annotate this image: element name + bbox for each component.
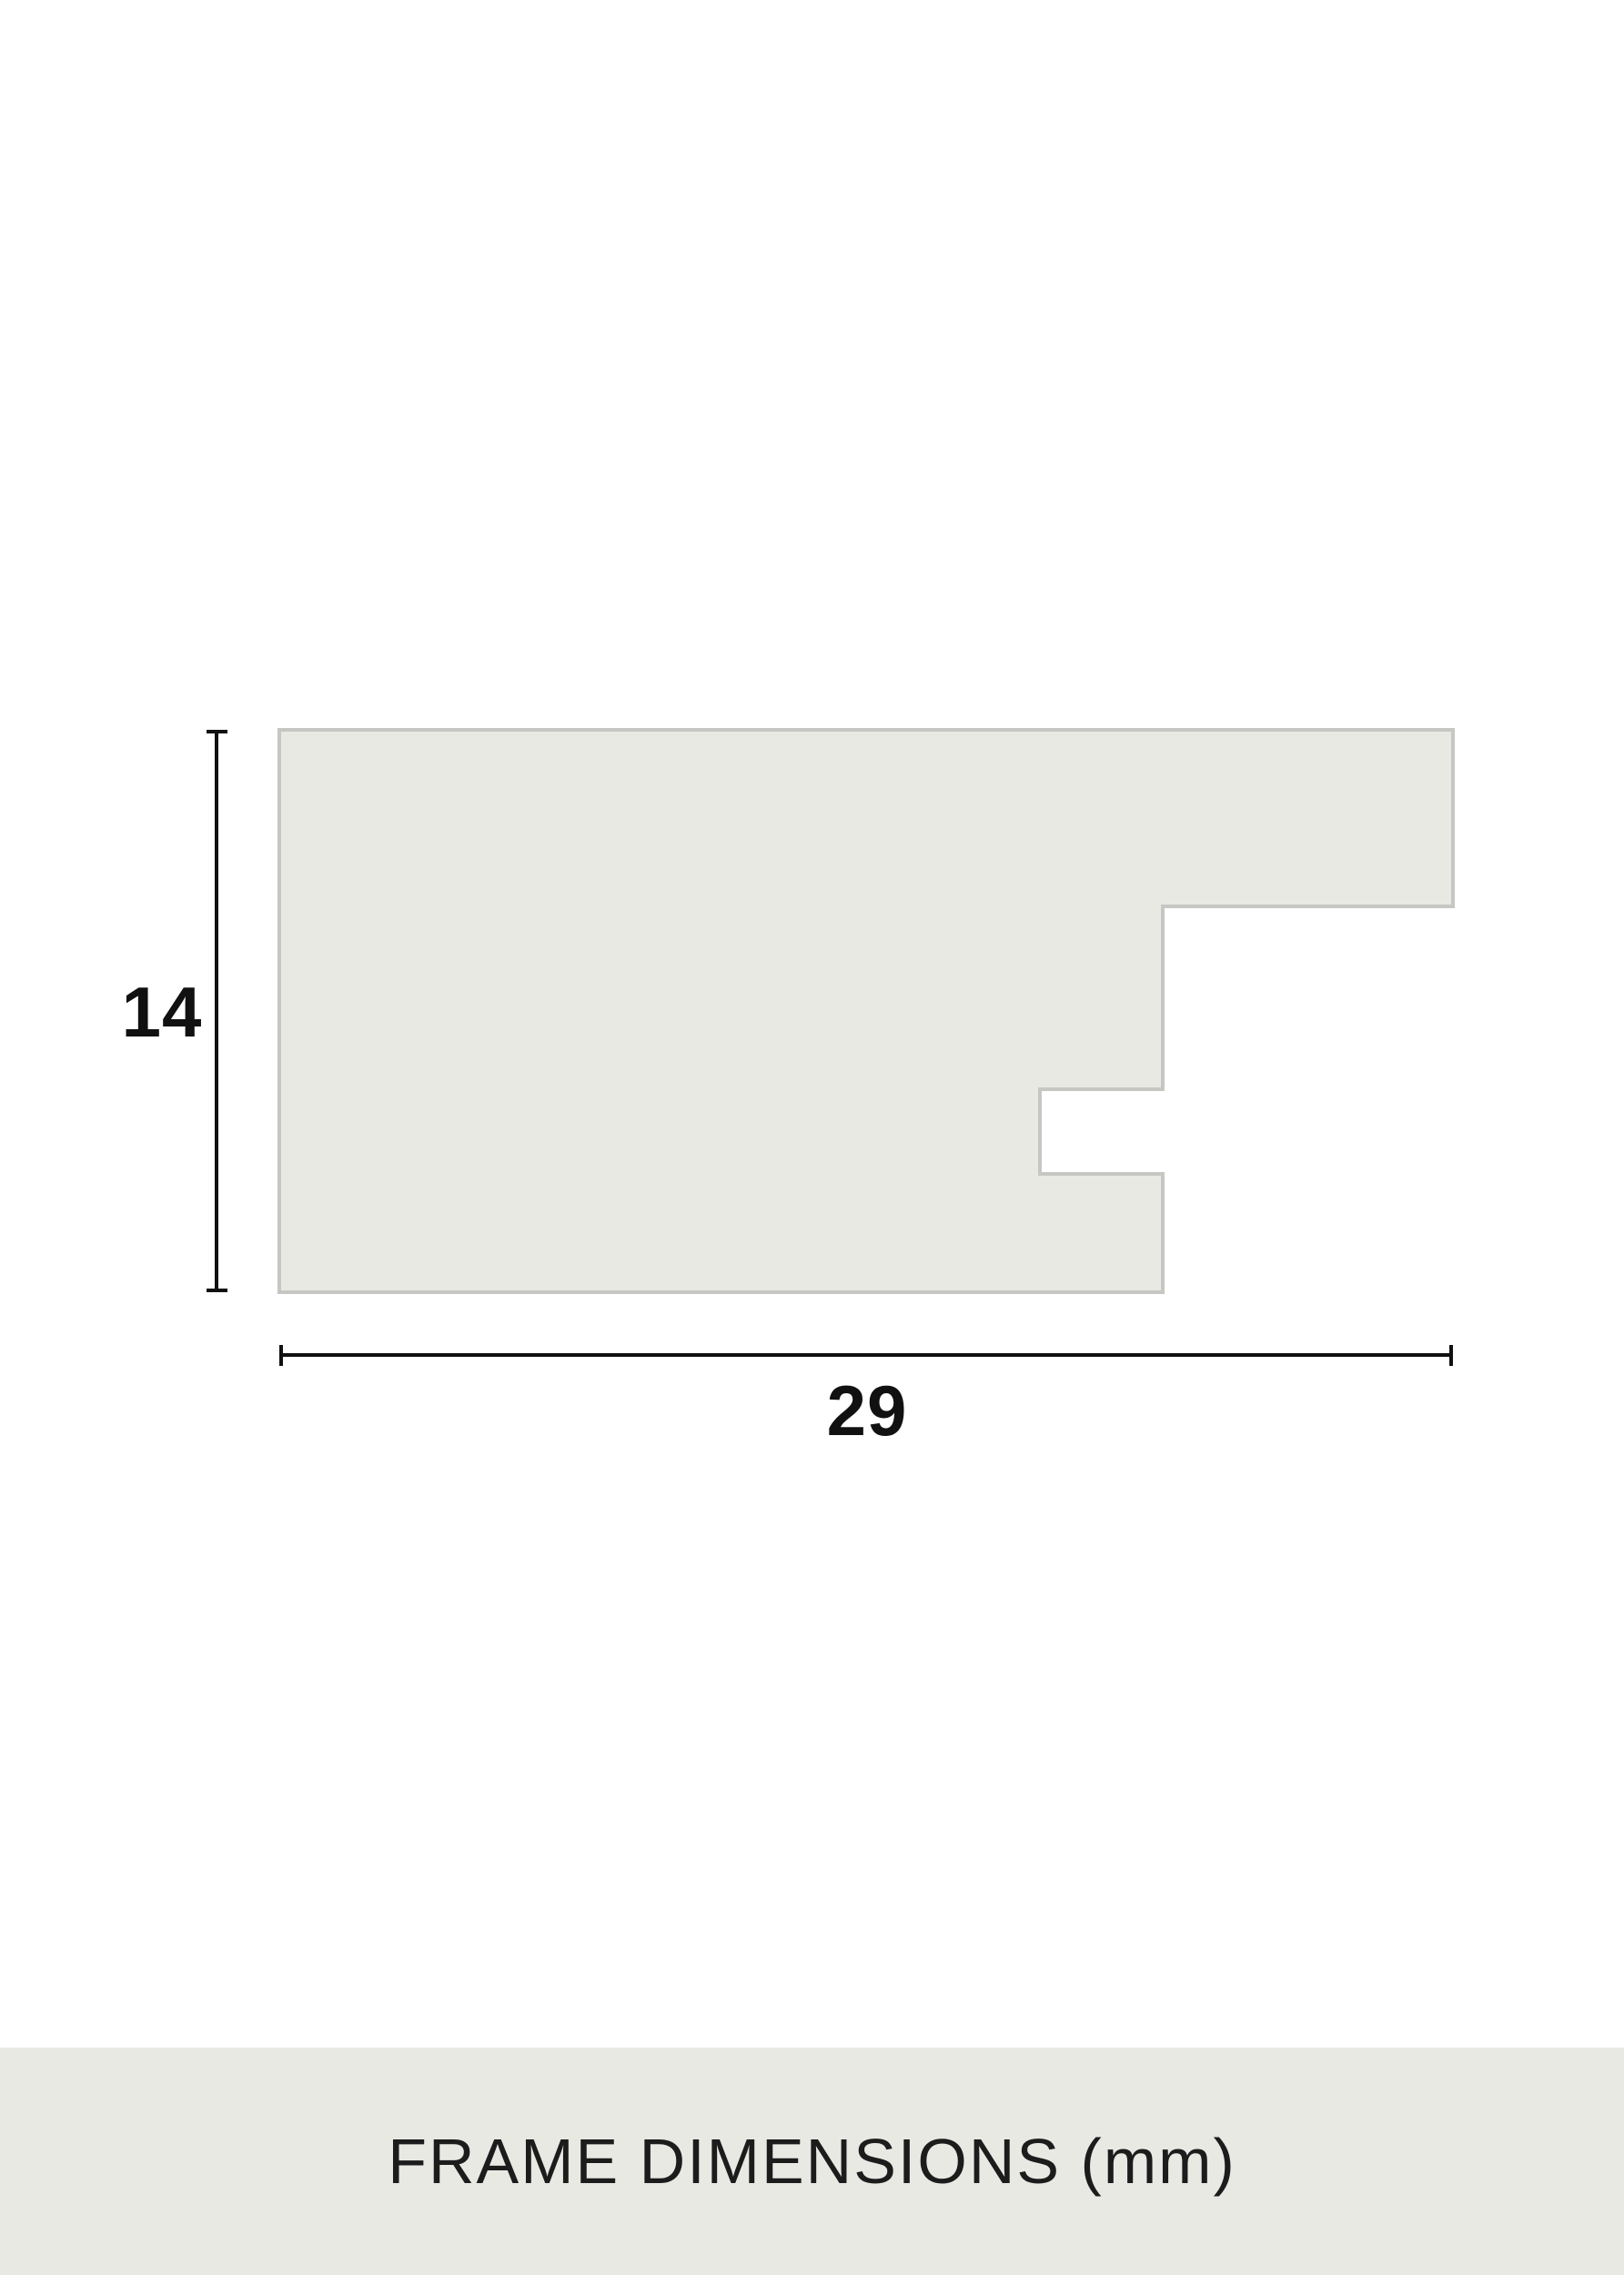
height-dimension-line <box>207 732 227 1290</box>
frame-profile-shape <box>279 730 1453 1292</box>
caption-text: FRAME DIMENSIONS (mm) <box>388 2129 1236 2193</box>
diagram-canvas: 14 29 FRAME DIMENSIONS (mm) <box>0 0 1624 2275</box>
frame-profile-diagram <box>0 0 1624 2275</box>
height-dimension-label: 14 <box>122 976 203 1047</box>
width-dimension-line <box>281 1345 1451 1366</box>
caption-band: FRAME DIMENSIONS (mm) <box>0 2047 1624 2275</box>
width-dimension-label: 29 <box>827 1375 908 1446</box>
